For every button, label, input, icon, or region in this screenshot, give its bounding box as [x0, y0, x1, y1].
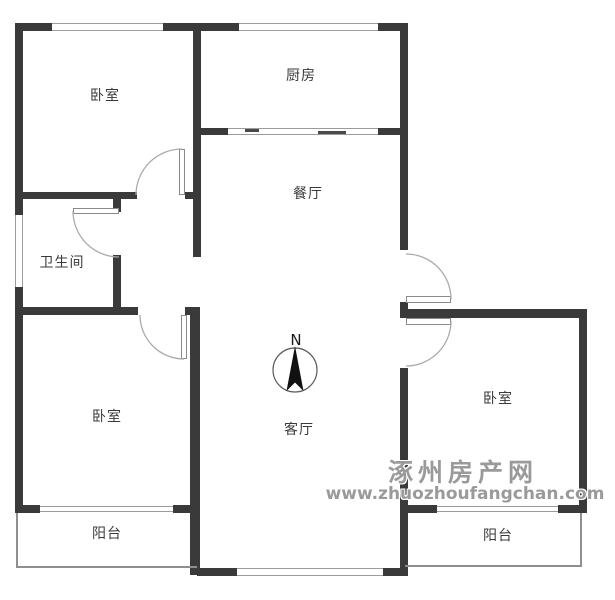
wall	[15, 287, 23, 513]
wall	[402, 309, 587, 318]
room-label-living: 客厅	[284, 419, 314, 439]
wall	[558, 505, 587, 513]
room-label-bedroom-right: 卧室	[483, 388, 513, 408]
door-leaf-bedroom-bottom-left	[181, 315, 187, 359]
watermark-url: www.zhuozhoufangchan.com	[326, 484, 605, 504]
wall	[193, 23, 201, 257]
balcony-door	[40, 506, 173, 512]
window	[15, 215, 23, 287]
room-label-dining: 餐厅	[293, 183, 323, 203]
door-leaf-entry	[406, 296, 451, 303]
floor-plan: 卧室 厨房 餐厅 卫生间 卧室 客厅 卧室 阳台 阳台 N 涿州房产网 www.…	[0, 0, 615, 600]
room-label-bedroom-bottom-left: 卧室	[92, 406, 122, 426]
wall	[190, 312, 200, 575]
room-label-balcony-right: 阳台	[483, 525, 513, 545]
wall	[113, 255, 121, 307]
wall	[197, 568, 237, 576]
balcony-door	[437, 506, 558, 512]
sliding-door-panel	[318, 131, 346, 134]
window	[239, 23, 378, 31]
wall	[15, 23, 23, 215]
door-arc-bedroom-top-left	[136, 149, 182, 195]
door-arc-entry	[406, 254, 451, 299]
window	[52, 23, 163, 31]
wall	[400, 23, 408, 250]
door-leaf-bathroom	[73, 208, 119, 214]
door-arc-bedroom-right	[406, 321, 451, 366]
wall	[163, 23, 239, 31]
wall	[400, 505, 437, 513]
wall	[15, 307, 138, 315]
balcony-rail	[580, 513, 582, 565]
door-arc-bathroom	[73, 211, 119, 257]
wall	[15, 192, 137, 199]
wall	[185, 192, 200, 199]
room-label-bathroom: 卫生间	[40, 252, 85, 272]
compass-icon	[273, 346, 317, 392]
door-leaf-bedroom-right	[406, 318, 451, 325]
wall	[579, 309, 587, 513]
door-arc-bedroom-bottom-left	[140, 315, 184, 359]
balcony-rail	[405, 565, 582, 567]
room-label-kitchen: 厨房	[286, 65, 316, 85]
room-label-bedroom-top-left: 卧室	[90, 85, 120, 105]
door-leaf-bedroom-top-left	[179, 149, 185, 195]
wall	[378, 128, 408, 135]
balcony-rail	[16, 513, 18, 567]
wall	[173, 505, 197, 513]
wall	[15, 505, 40, 513]
sliding-door-panel	[245, 129, 259, 132]
room-label-balcony-left: 阳台	[92, 523, 122, 543]
wall	[200, 128, 228, 135]
balcony-rail	[16, 566, 197, 568]
window	[237, 568, 383, 576]
compass-north-label: N	[290, 331, 301, 349]
